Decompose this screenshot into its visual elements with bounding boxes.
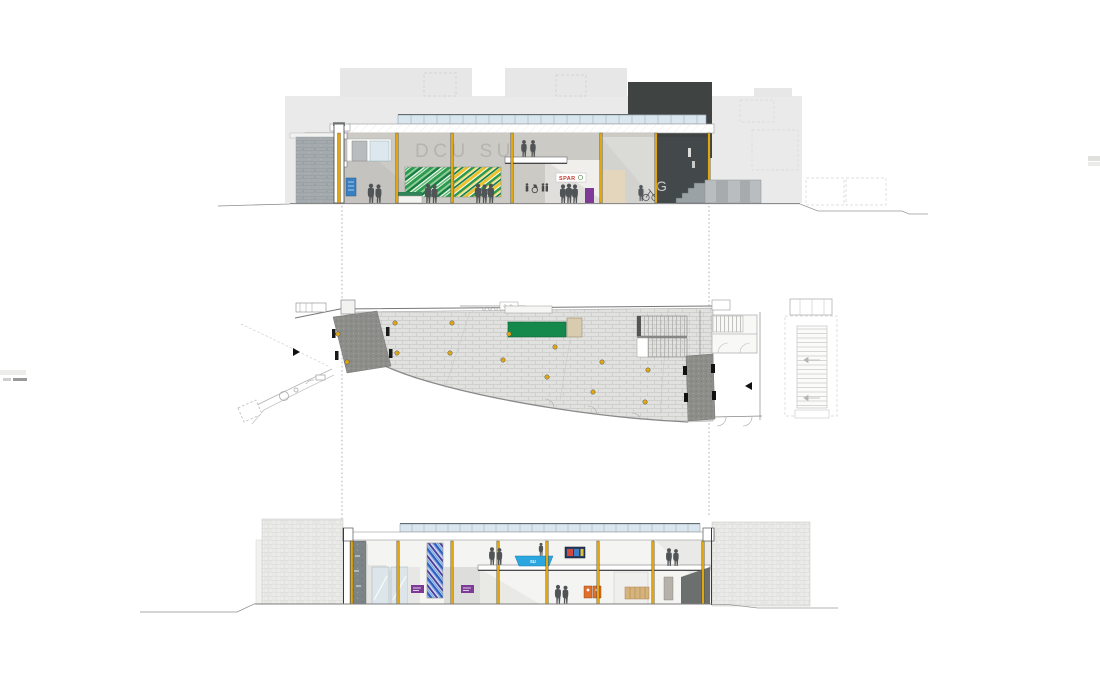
canopy-plan	[296, 303, 326, 312]
clerestory-glazing-band	[398, 115, 706, 124]
left-edge-fragment	[0, 370, 27, 381]
floor-plan-drawing	[238, 299, 837, 426]
south-wall-right	[713, 416, 762, 417]
background-mass-roof-right	[505, 68, 627, 97]
background-mass-roof-left	[340, 68, 472, 97]
level-letter-text: G	[656, 178, 667, 194]
purple-sign	[411, 585, 424, 593]
entrance-mat-east	[686, 354, 715, 421]
entry-arrow-east-icon	[745, 382, 752, 390]
entry-arrow-west-icon	[293, 348, 300, 356]
concrete-block-wall	[296, 137, 335, 203]
vending-window	[587, 589, 590, 592]
wall-shaft	[341, 300, 355, 314]
cut-column-yellow	[338, 133, 341, 203]
counter-body	[396, 196, 422, 203]
upper-room-glazing	[370, 141, 389, 161]
counter-plan	[505, 306, 552, 313]
roof-hatch	[348, 124, 714, 133]
site-boundary-dashed	[241, 324, 330, 367]
lobby-box	[712, 300, 730, 310]
vending-unit	[584, 586, 592, 598]
east-block-wall	[712, 522, 810, 606]
stair-plan-secondary	[712, 315, 757, 353]
ground-line-left	[218, 204, 290, 206]
tv-content	[574, 549, 579, 556]
drawing-canvas: DCU SU SPAR G	[0, 0, 1100, 675]
door-swing-arc	[743, 417, 752, 426]
door-swing-arc	[717, 417, 726, 426]
upper-room-door	[352, 141, 367, 161]
tv-content	[567, 549, 573, 556]
blue-mosaic-artwork	[427, 543, 443, 598]
top-right-stair-box	[790, 299, 832, 315]
timber-wall-panel	[600, 170, 625, 203]
timber-panel	[625, 587, 649, 599]
transom-wall	[368, 541, 410, 565]
parapet-cut-west	[343, 528, 353, 541]
section-drawing: SU	[140, 519, 838, 612]
ground-line-left	[140, 604, 255, 612]
wall-band	[740, 180, 750, 203]
building-sign-text: DCU SU	[415, 141, 515, 162]
parapet-cut-east	[703, 528, 714, 541]
cut-column-yellow	[351, 541, 354, 604]
purple-door-panel	[585, 188, 594, 203]
blue-poster-panel	[346, 178, 356, 196]
roof-fascia	[346, 532, 714, 540]
ground-line-right	[800, 204, 928, 214]
west-block-wall	[262, 519, 343, 604]
right-edge-fragment	[1088, 156, 1100, 166]
dashed-block-outline	[846, 178, 886, 205]
ramp-plan	[785, 316, 837, 418]
foreground-block-wall	[705, 180, 761, 203]
mezzanine-slab	[505, 157, 567, 163]
clerestory-glazing-band	[400, 524, 700, 532]
tv-content	[581, 549, 584, 556]
green-desk-plan	[508, 322, 566, 337]
counter-top-green	[396, 192, 422, 196]
wall-band	[716, 180, 728, 203]
background-parapet-tab	[754, 88, 792, 97]
stair-window-slot	[692, 161, 695, 168]
architectural-sheet: DCU SU SPAR G	[0, 0, 1100, 675]
poster-panel	[664, 577, 673, 600]
link-corridor-plan	[238, 369, 334, 424]
purple-sign	[461, 585, 474, 593]
desk-sign-text: SU	[530, 559, 536, 564]
shop-sign-text: SPAR	[559, 176, 575, 182]
stair-window-slot	[688, 148, 691, 157]
elevation-drawing: DCU SU SPAR G	[218, 68, 928, 214]
dashed-block-outline	[806, 178, 844, 205]
timber-kiosk-plan	[567, 318, 582, 337]
